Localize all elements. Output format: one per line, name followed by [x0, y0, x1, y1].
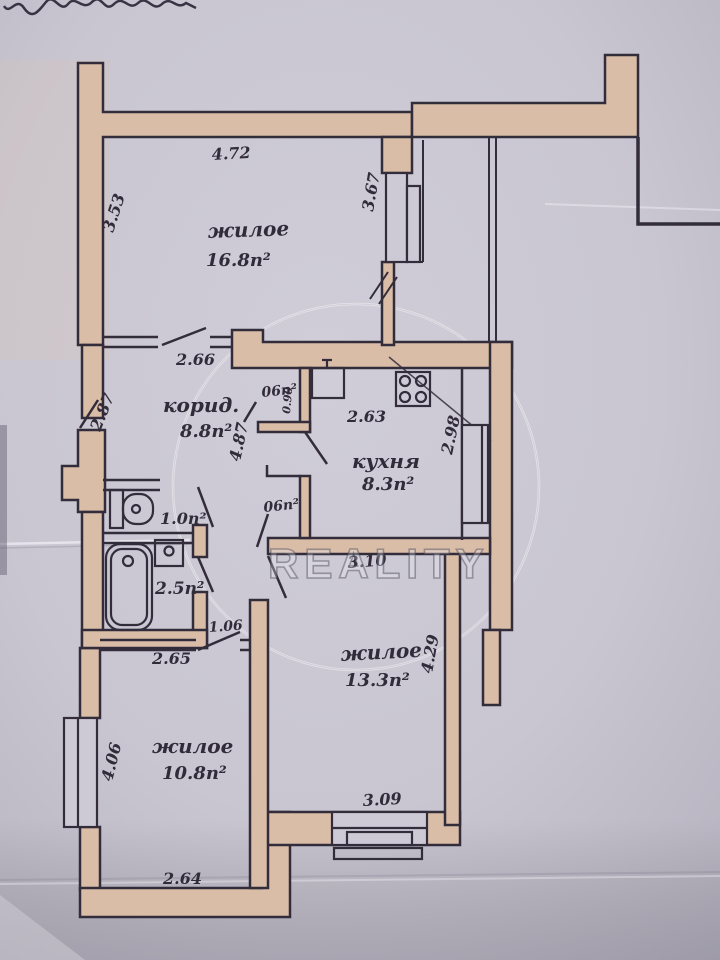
watermark-text: REALITY	[268, 540, 490, 587]
wall-bath-pier	[193, 525, 207, 557]
wall-closet-bottom-right	[300, 476, 310, 538]
room-living-right-name: жилое	[340, 638, 423, 666]
room-living-top-area: 16.8п²	[206, 250, 271, 271]
wall-room-right-right	[445, 545, 460, 825]
niche-window-2	[407, 186, 420, 262]
dim-living-right-bottom-width: 3.09	[362, 789, 402, 810]
room-corridor-area: 8.8п²	[179, 421, 232, 442]
room-wc-area: 1.0п²	[160, 509, 206, 528]
wall-bath-left	[82, 512, 103, 648]
dim-living-bottom-width: 2.64	[162, 869, 202, 888]
wall-room-bottom-left-lower	[80, 827, 100, 890]
wall-right-exterior-foot	[483, 630, 500, 705]
dim-corridor-width: 2.66	[175, 350, 215, 369]
balcony-door-sill	[347, 832, 412, 845]
room-living-right-area: 13.3п²	[345, 670, 410, 691]
scanned-floorplan-photo: жилое 16.8п² корид. 8.8п² кухня 8.3п² 1.…	[0, 0, 720, 960]
room-kitchen-name: кухня	[352, 449, 420, 473]
dim-hall-width: 1.06	[208, 618, 243, 636]
niche-window	[386, 173, 407, 262]
room-living-bottom-area: 10.8п²	[162, 763, 227, 784]
wall-room-bottom-left-upper	[80, 648, 100, 718]
floorplan-svg: жилое 16.8п² корид. 8.8п² кухня 8.3п² 1.…	[0, 0, 720, 960]
wall-closet-top-bottom	[258, 422, 310, 432]
wall-niche-bottom	[382, 262, 394, 345]
wall-niche-top	[382, 137, 412, 173]
dim-closet-width: 0.90	[280, 386, 295, 414]
dim-living-top-width: 4.72	[211, 143, 251, 164]
room-corridor-name: корид.	[163, 393, 239, 417]
left-window	[64, 718, 97, 827]
room-living-top-name: жилое	[207, 216, 289, 243]
dim-living-bottom-top-width: 2.65	[151, 649, 191, 668]
wall-right-exterior	[490, 342, 512, 630]
dim-kitchen-width: 2.63	[346, 407, 386, 426]
room-living-bottom-name: жилое	[152, 734, 233, 758]
vent-shaft	[462, 425, 488, 523]
room-kitchen-area: 8.3п²	[361, 474, 414, 495]
wall-central	[250, 600, 268, 888]
room-bathroom-area: 2.5п²	[154, 579, 204, 599]
